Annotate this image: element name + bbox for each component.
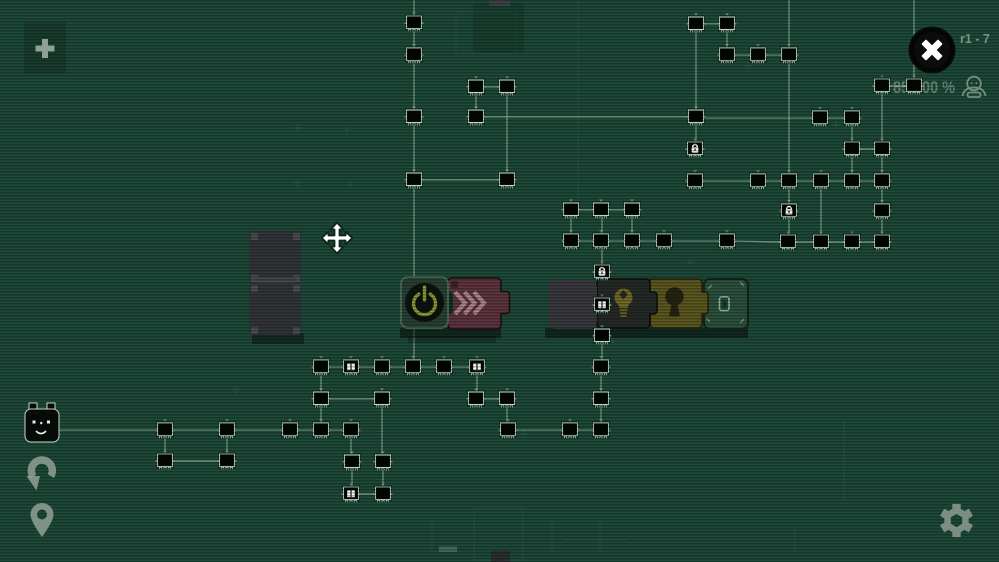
svg-text:r1 - 7: r1 - 7 xyxy=(960,32,990,46)
